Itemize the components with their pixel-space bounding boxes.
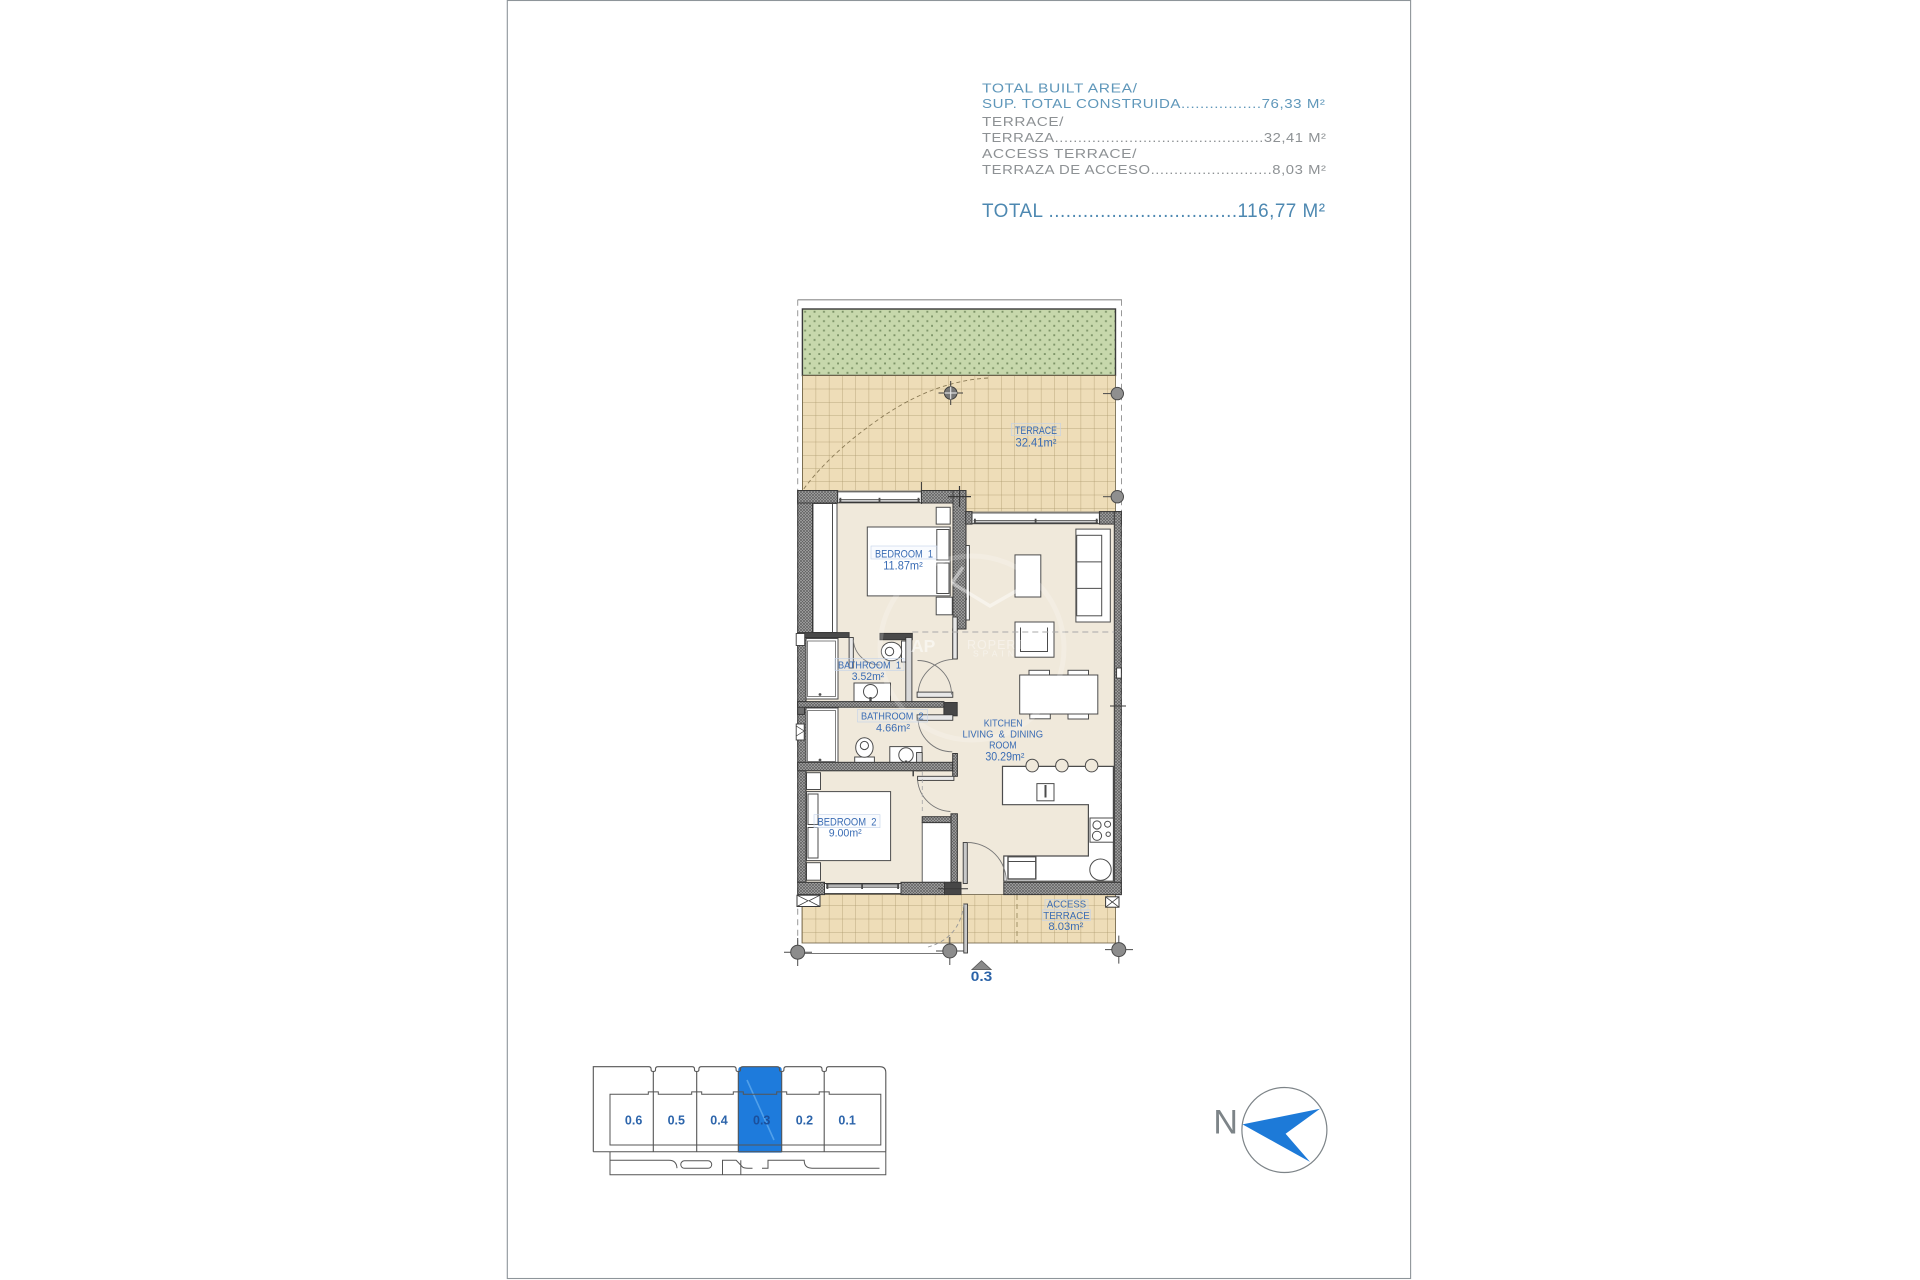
svg-text:11.87m²: 11.87m² (883, 561, 923, 573)
svg-text:4.66m²: 4.66m² (876, 723, 910, 735)
svg-text:0.2: 0.2 (796, 1114, 813, 1128)
svg-text:BEDROOM 1: BEDROOM 1 (875, 549, 933, 561)
svg-text:TERRAZA.......................: TERRAZA.................................… (982, 130, 1327, 145)
svg-text:TERRAZA DE ACCESO.............: TERRAZA DE ACCESO.......................… (982, 162, 1327, 177)
svg-text:9.00m²: 9.00m² (829, 828, 862, 840)
svg-text:0.6: 0.6 (625, 1114, 642, 1128)
svg-text:8.03m²: 8.03m² (1048, 921, 1083, 933)
svg-text:BATHROOM 1: BATHROOM 1 (838, 659, 901, 671)
svg-text:N: N (1213, 1104, 1238, 1142)
svg-text:TOTAL BUILT AREA/: TOTAL BUILT AREA/ (982, 81, 1138, 96)
svg-text:TERRACE/: TERRACE/ (982, 114, 1064, 129)
svg-text:30.29m²: 30.29m² (985, 752, 1024, 764)
svg-text:0.3: 0.3 (971, 969, 993, 984)
svg-text:BATHROOM 2: BATHROOM 2 (861, 711, 924, 723)
svg-text:AP: AP (911, 636, 936, 656)
svg-text:TOTAL ........................: TOTAL .................................1… (982, 200, 1326, 222)
svg-text:3.52m²: 3.52m² (852, 671, 885, 683)
svg-text:ACCESS: ACCESS (1047, 899, 1086, 910)
svg-text:TERRACE: TERRACE (1015, 425, 1057, 437)
svg-text:0.1: 0.1 (838, 1114, 855, 1128)
svg-text:SPAIN: SPAIN (973, 649, 1018, 659)
svg-text:ACCESS TERRACE/: ACCESS TERRACE/ (982, 146, 1137, 161)
svg-text:0.5: 0.5 (668, 1114, 685, 1128)
svg-text:0.3: 0.3 (753, 1114, 770, 1128)
svg-text:BEDROOM 2: BEDROOM 2 (818, 816, 877, 828)
svg-text:ROOM: ROOM (989, 739, 1017, 751)
svg-text:0.4: 0.4 (710, 1114, 727, 1128)
svg-text:SUP. TOTAL CONSTRUIDA.........: SUP. TOTAL CONSTRUIDA.................76… (982, 96, 1326, 111)
svg-text:32.41m²: 32.41m² (1016, 438, 1057, 450)
